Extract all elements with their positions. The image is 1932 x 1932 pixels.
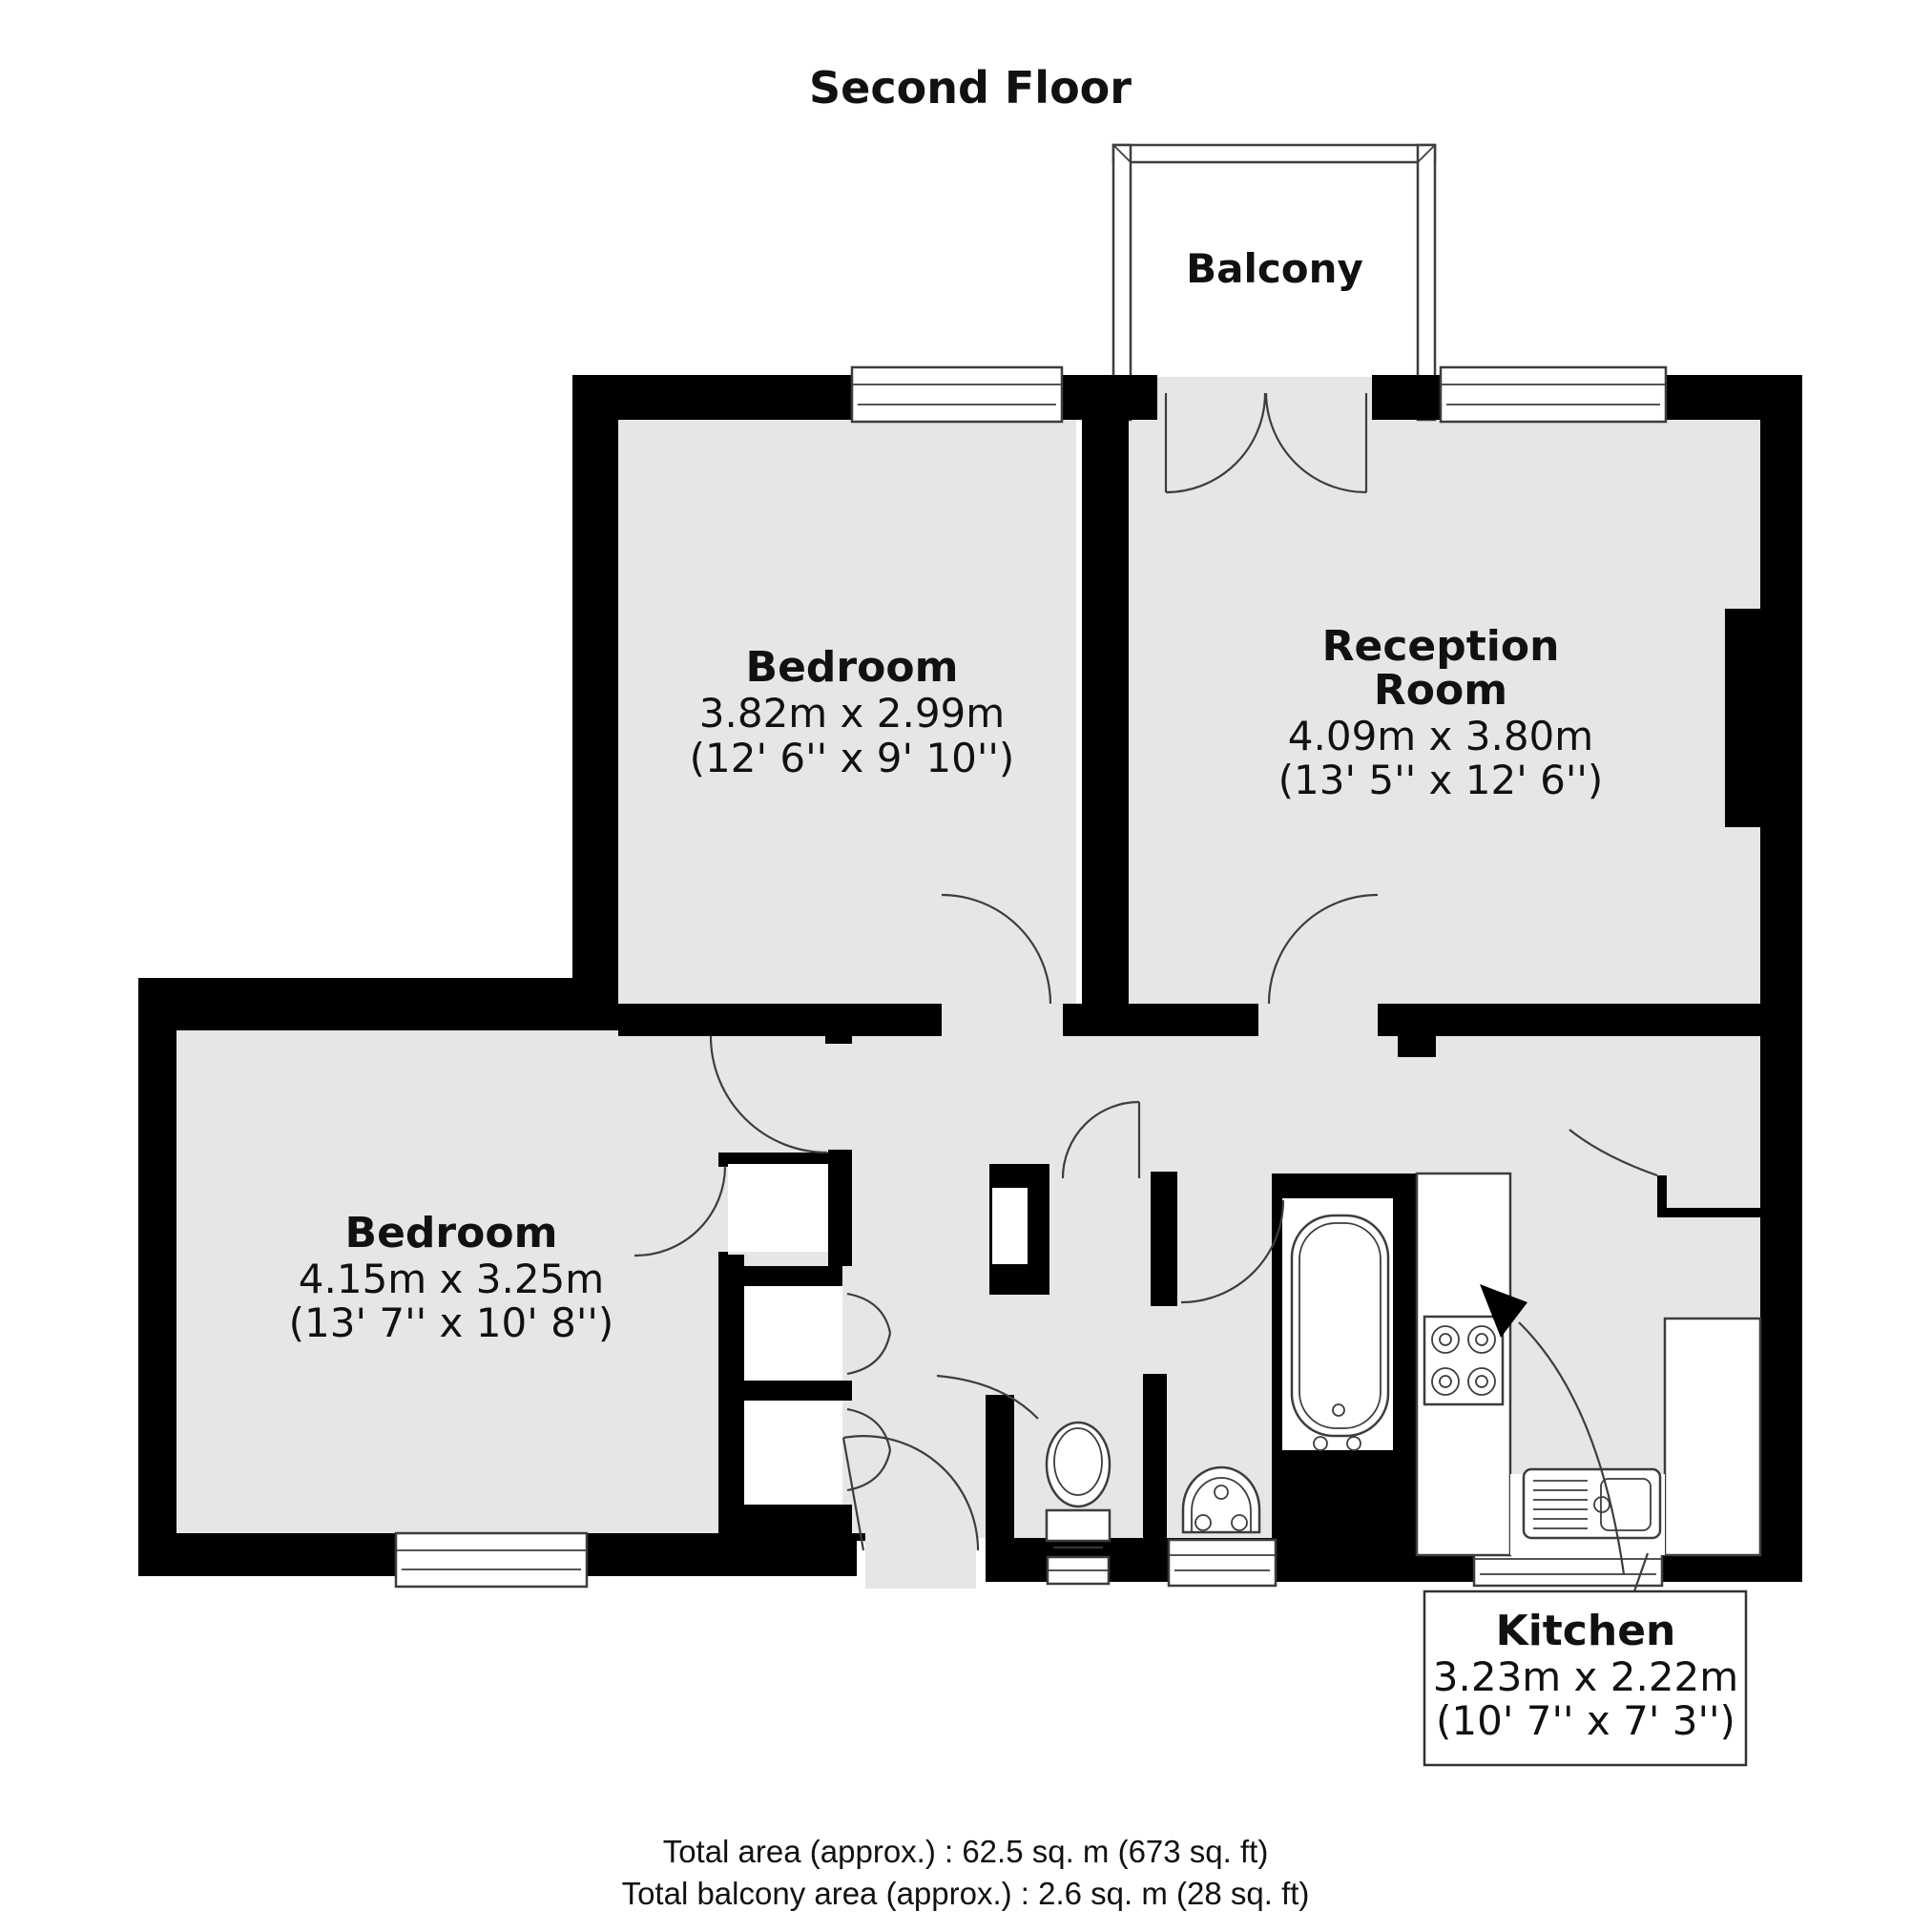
bedroom-top-size-metric: 3.82m x 2.99m [699, 690, 1005, 737]
reception-label-line2: Room [1374, 666, 1507, 715]
bedroom-top-window [852, 367, 1062, 422]
reception-label-line1: Reception [1322, 622, 1560, 671]
bedroom-bottom-window [396, 1533, 587, 1587]
page-title: Second Floor [809, 62, 1132, 114]
floor-plan: Second Floor Balcony Bedroom 3.82m x 2.9… [0, 0, 1932, 1932]
kitchen-label: Kitchen [1496, 1607, 1676, 1655]
bedroom-top-label: Bedroom [746, 643, 959, 692]
total-balcony-area: Total balcony area (approx.) : 2.6 sq. m… [622, 1876, 1310, 1911]
toilet [1047, 1423, 1110, 1548]
bedroom-top-size-imperial: (12' 6'' x 9' 10'') [690, 735, 1015, 781]
bedroom-bottom-size-imperial: (13' 7'' x 10' 8'') [289, 1299, 614, 1346]
closet-1 [728, 1164, 828, 1252]
reception-window [1441, 367, 1666, 422]
bedroom-bottom-size-metric: 4.15m x 3.25m [299, 1256, 604, 1302]
balcony-wall-top [1113, 145, 1435, 162]
entrance-jamb-left [857, 1541, 865, 1576]
service-duct [992, 1188, 1028, 1264]
kitchen-size-imperial: (10' 7'' x 7' 3'') [1436, 1697, 1735, 1744]
entrance-threshold [865, 1533, 976, 1589]
floor-plan-canvas: Second Floor Balcony Bedroom 3.82m x 2.9… [0, 0, 1932, 1932]
kitchen-size-metric: 3.23m x 2.22m [1433, 1653, 1738, 1700]
hob [1424, 1317, 1503, 1404]
basin-window [1169, 1540, 1276, 1586]
bathtub [1292, 1215, 1388, 1450]
kitchen-sink [1524, 1469, 1660, 1538]
bedroom-bottom-label: Bedroom [345, 1209, 558, 1257]
closet-3 [744, 1401, 842, 1505]
kitchen-counter-right [1665, 1319, 1760, 1555]
reception-size-metric: 4.09m x 3.80m [1288, 713, 1593, 759]
balcony-label: Balcony [1186, 245, 1363, 292]
reception-size-imperial: (13' 5'' x 12' 6'') [1278, 757, 1604, 803]
wc-window [1048, 1557, 1109, 1584]
reception-pillar [1725, 609, 1760, 827]
closet-2 [744, 1286, 842, 1381]
total-area: Total area (approx.) : 62.5 sq. m (673 s… [663, 1834, 1269, 1869]
